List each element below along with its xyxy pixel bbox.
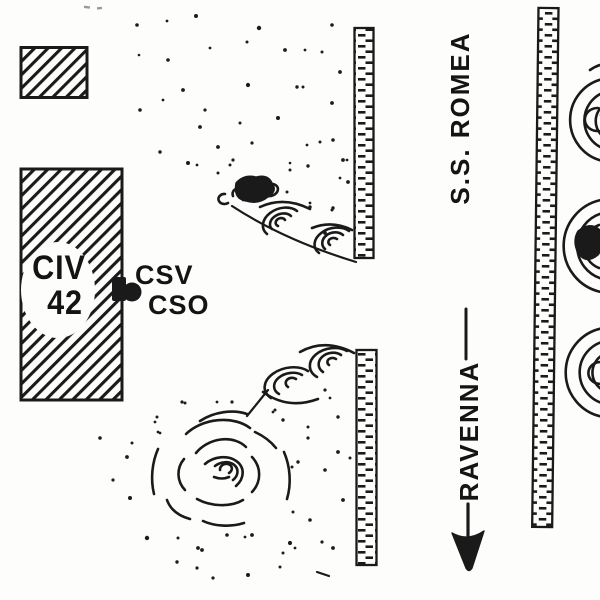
station-label-cso: CSO	[148, 292, 210, 319]
station-label-csv: CSV	[135, 262, 194, 289]
site-sketch-map: CIV 42 CSV CSO S.S. ROMEA RAVENNA	[0, 0, 600, 600]
bushes-right-roadside	[564, 64, 600, 417]
road-label-ss-romea: S.S. ROMEA	[445, 13, 475, 223]
bush-rose-large	[152, 412, 290, 526]
direction-label-ravenna: RAVENNA	[454, 346, 484, 516]
bush-cluster-upper	[218, 176, 356, 262]
paper-specks	[84, 6, 102, 10]
vegetation-dots-upper	[135, 14, 350, 235]
building-label-line1: CIV	[30, 251, 88, 285]
bush-cluster-mid	[247, 345, 354, 416]
hatched-building-small	[21, 48, 87, 98]
vegetation-dots-lower	[98, 388, 351, 579]
road-edge-left-upper	[355, 28, 374, 258]
road-edge-left-lower	[357, 350, 377, 565]
building-label-line2: 42	[36, 286, 94, 320]
road-edge-right	[532, 8, 558, 527]
